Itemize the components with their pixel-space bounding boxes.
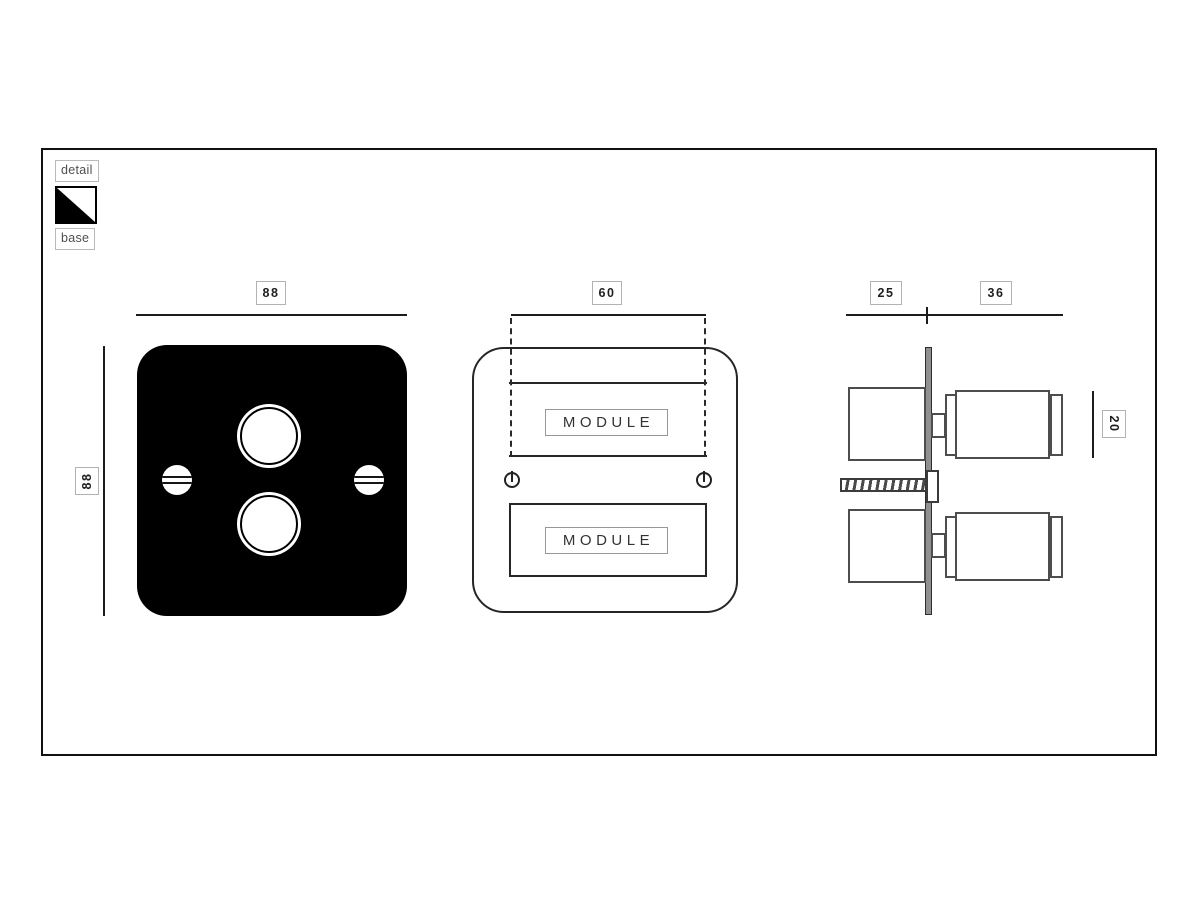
legend-base-label: base bbox=[55, 228, 95, 250]
dimmer-knob-bottom bbox=[237, 492, 301, 556]
finish-swatch-icon bbox=[55, 186, 97, 224]
screw-slot bbox=[162, 476, 192, 484]
knob-stem-bottom bbox=[931, 533, 946, 558]
technical-drawing-canvas: detail base 88 88 60 MODULE MODULE 25 36 bbox=[0, 0, 1200, 900]
front-depth-dim-label: 36 bbox=[980, 281, 1012, 305]
screw-slot bbox=[354, 476, 384, 484]
back-box-bottom bbox=[848, 509, 926, 583]
screw-hole-right bbox=[696, 472, 712, 488]
front-height-dim-label: 88 bbox=[75, 467, 99, 495]
front-width-dim-line bbox=[136, 314, 407, 316]
knob-length-dim-line bbox=[1092, 391, 1094, 458]
screw-right bbox=[354, 465, 384, 495]
fixing-screw bbox=[840, 478, 927, 492]
witness-line-right bbox=[704, 318, 706, 457]
knob-ring bbox=[240, 407, 298, 465]
witness-line-left bbox=[510, 318, 512, 457]
front-height-dim-line bbox=[103, 346, 105, 616]
front-width-dim-label: 88 bbox=[256, 281, 286, 305]
screw-hole-slot bbox=[511, 471, 513, 482]
module-label-top: MODULE bbox=[545, 409, 668, 436]
dimmer-knob-top bbox=[237, 404, 301, 468]
depth-dim-tick bbox=[926, 307, 928, 324]
module-width-dim-label: 60 bbox=[592, 281, 622, 305]
back-box-top bbox=[848, 387, 926, 461]
legend-detail-label: detail bbox=[55, 160, 99, 182]
depth-dim-line bbox=[846, 314, 1063, 316]
knob-body-bottom bbox=[955, 512, 1050, 581]
screw-hole-left bbox=[504, 472, 520, 488]
back-depth-dim-label: 25 bbox=[870, 281, 902, 305]
module-label-bottom: MODULE bbox=[545, 527, 668, 554]
knob-stem-top bbox=[931, 413, 946, 438]
knob-length-dim-label: 20 bbox=[1102, 410, 1126, 438]
module-width-dim-line bbox=[511, 314, 706, 316]
knob-cap-bottom bbox=[1050, 516, 1063, 578]
screw-hole-slot bbox=[703, 471, 705, 482]
knob-body-top bbox=[955, 390, 1050, 459]
knob-cap-top bbox=[1050, 394, 1063, 456]
knob-ring bbox=[240, 495, 298, 553]
screw-boss bbox=[926, 470, 939, 503]
screw-left bbox=[162, 465, 192, 495]
